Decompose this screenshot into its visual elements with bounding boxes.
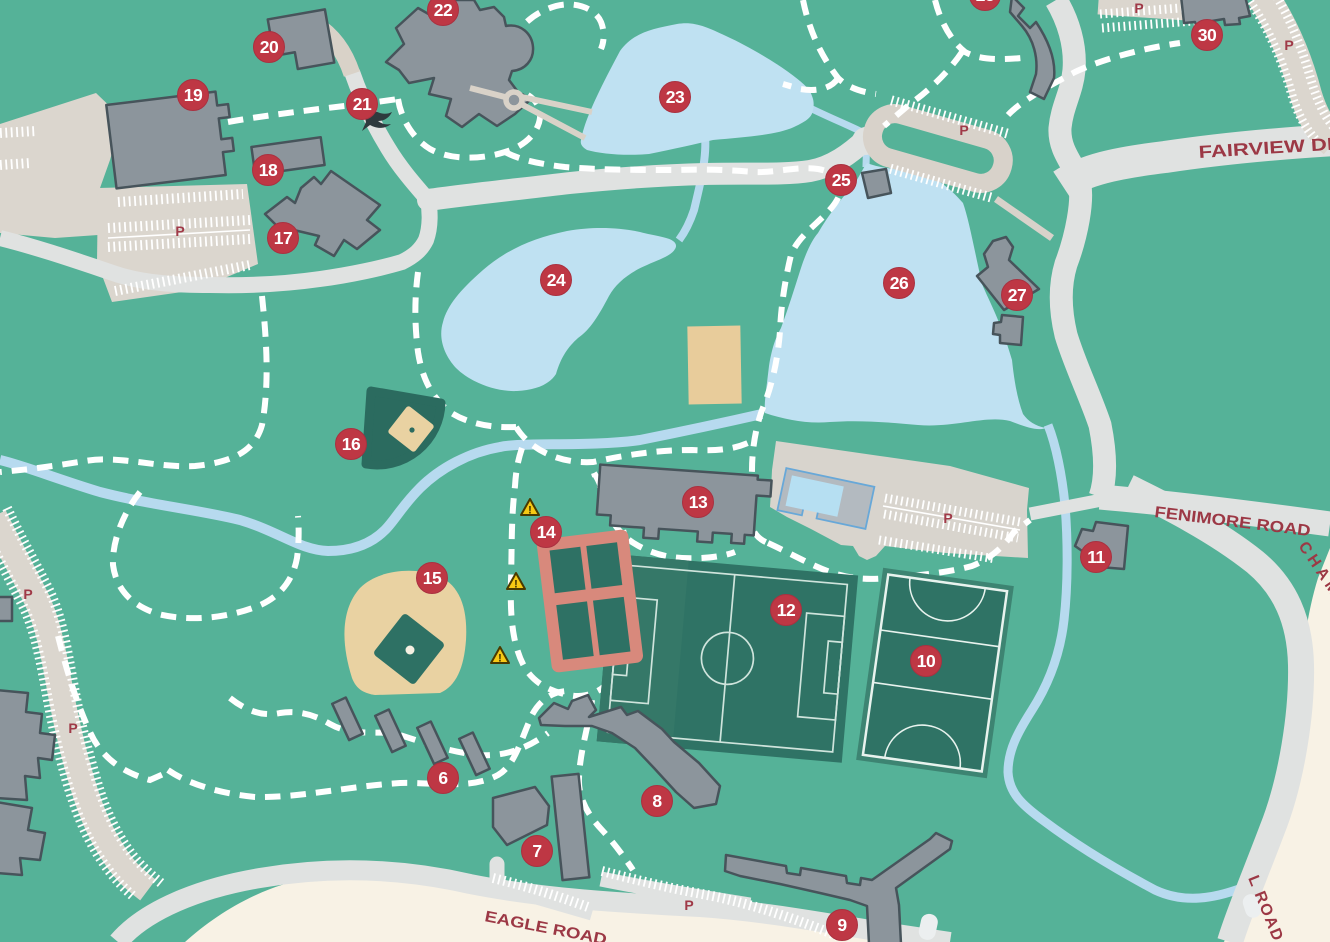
svg-text:8: 8 (652, 791, 662, 811)
svg-text:7: 7 (532, 841, 541, 861)
svg-text:P: P (1284, 37, 1293, 53)
svg-text:14: 14 (537, 522, 556, 542)
svg-text:21: 21 (353, 94, 372, 114)
svg-text:19: 19 (184, 85, 203, 105)
svg-text:13: 13 (689, 492, 708, 512)
svg-text:P: P (684, 897, 693, 913)
svg-text:!: ! (528, 505, 532, 517)
svg-text:!: ! (514, 579, 518, 591)
svg-text:P: P (23, 586, 32, 602)
svg-text:23: 23 (666, 87, 685, 107)
svg-text:25: 25 (832, 170, 851, 190)
svg-text:P: P (959, 122, 968, 138)
svg-text:6: 6 (438, 768, 448, 788)
svg-text:11: 11 (1087, 547, 1105, 567)
svg-text:20: 20 (260, 37, 279, 57)
svg-text:18: 18 (259, 160, 278, 180)
svg-text:16: 16 (342, 434, 361, 454)
svg-text:P: P (175, 223, 184, 239)
svg-text:P: P (68, 720, 77, 736)
svg-text:24: 24 (547, 270, 566, 290)
svg-text:26: 26 (890, 273, 909, 293)
svg-text:!: ! (498, 653, 502, 665)
svg-text:P: P (1134, 0, 1143, 16)
svg-text:15: 15 (423, 568, 442, 588)
svg-text:10: 10 (917, 651, 936, 671)
svg-text:28: 28 (976, 0, 995, 5)
svg-text:22: 22 (434, 0, 453, 20)
svg-text:27: 27 (1008, 285, 1026, 305)
svg-text:30: 30 (1198, 25, 1217, 45)
svg-text:17: 17 (274, 228, 292, 248)
svg-text:P: P (943, 510, 952, 526)
svg-text:12: 12 (777, 600, 796, 620)
svg-text:9: 9 (837, 915, 847, 935)
